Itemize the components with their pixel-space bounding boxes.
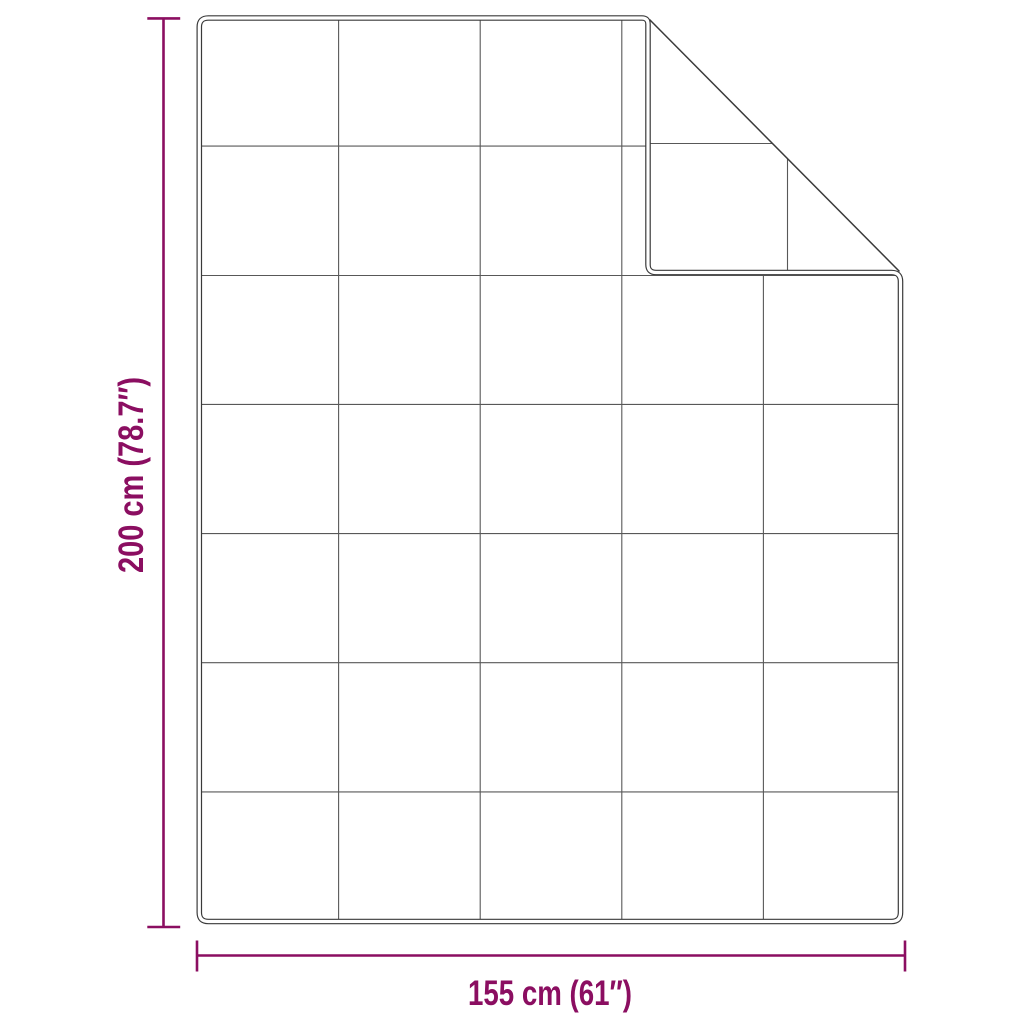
svg-text:200 cm (78.7″): 200 cm (78.7″) — [112, 377, 151, 573]
svg-text:155 cm (61″): 155 cm (61″) — [468, 974, 632, 1013]
